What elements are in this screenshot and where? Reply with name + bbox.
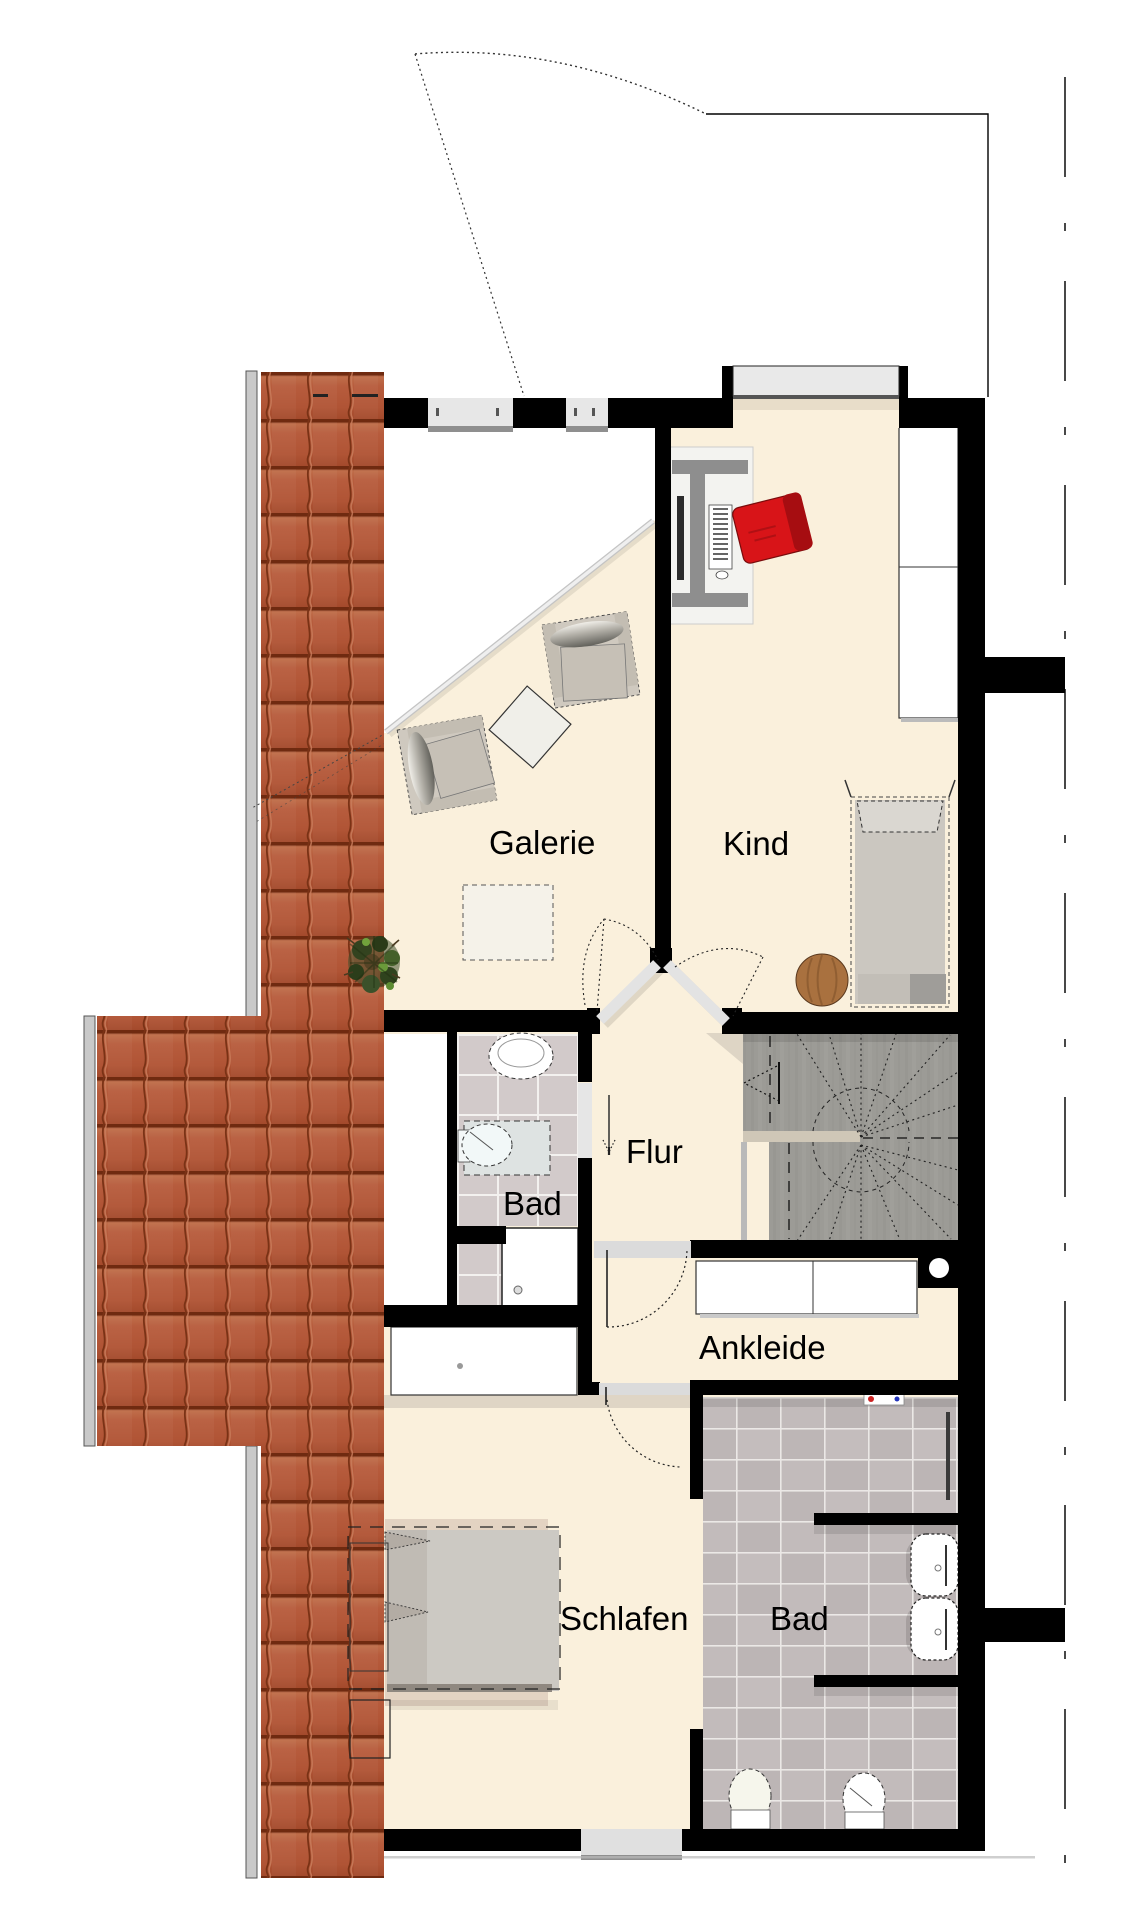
svg-text:Ankleide: Ankleide: [699, 1329, 826, 1366]
svg-text:Bad: Bad: [503, 1185, 562, 1222]
svg-text:Schlafen: Schlafen: [560, 1600, 688, 1637]
svg-text:Bad: Bad: [770, 1600, 829, 1637]
svg-text:Kind: Kind: [723, 825, 789, 862]
svg-text:Flur: Flur: [626, 1133, 683, 1170]
svg-text:Galerie: Galerie: [489, 824, 595, 861]
